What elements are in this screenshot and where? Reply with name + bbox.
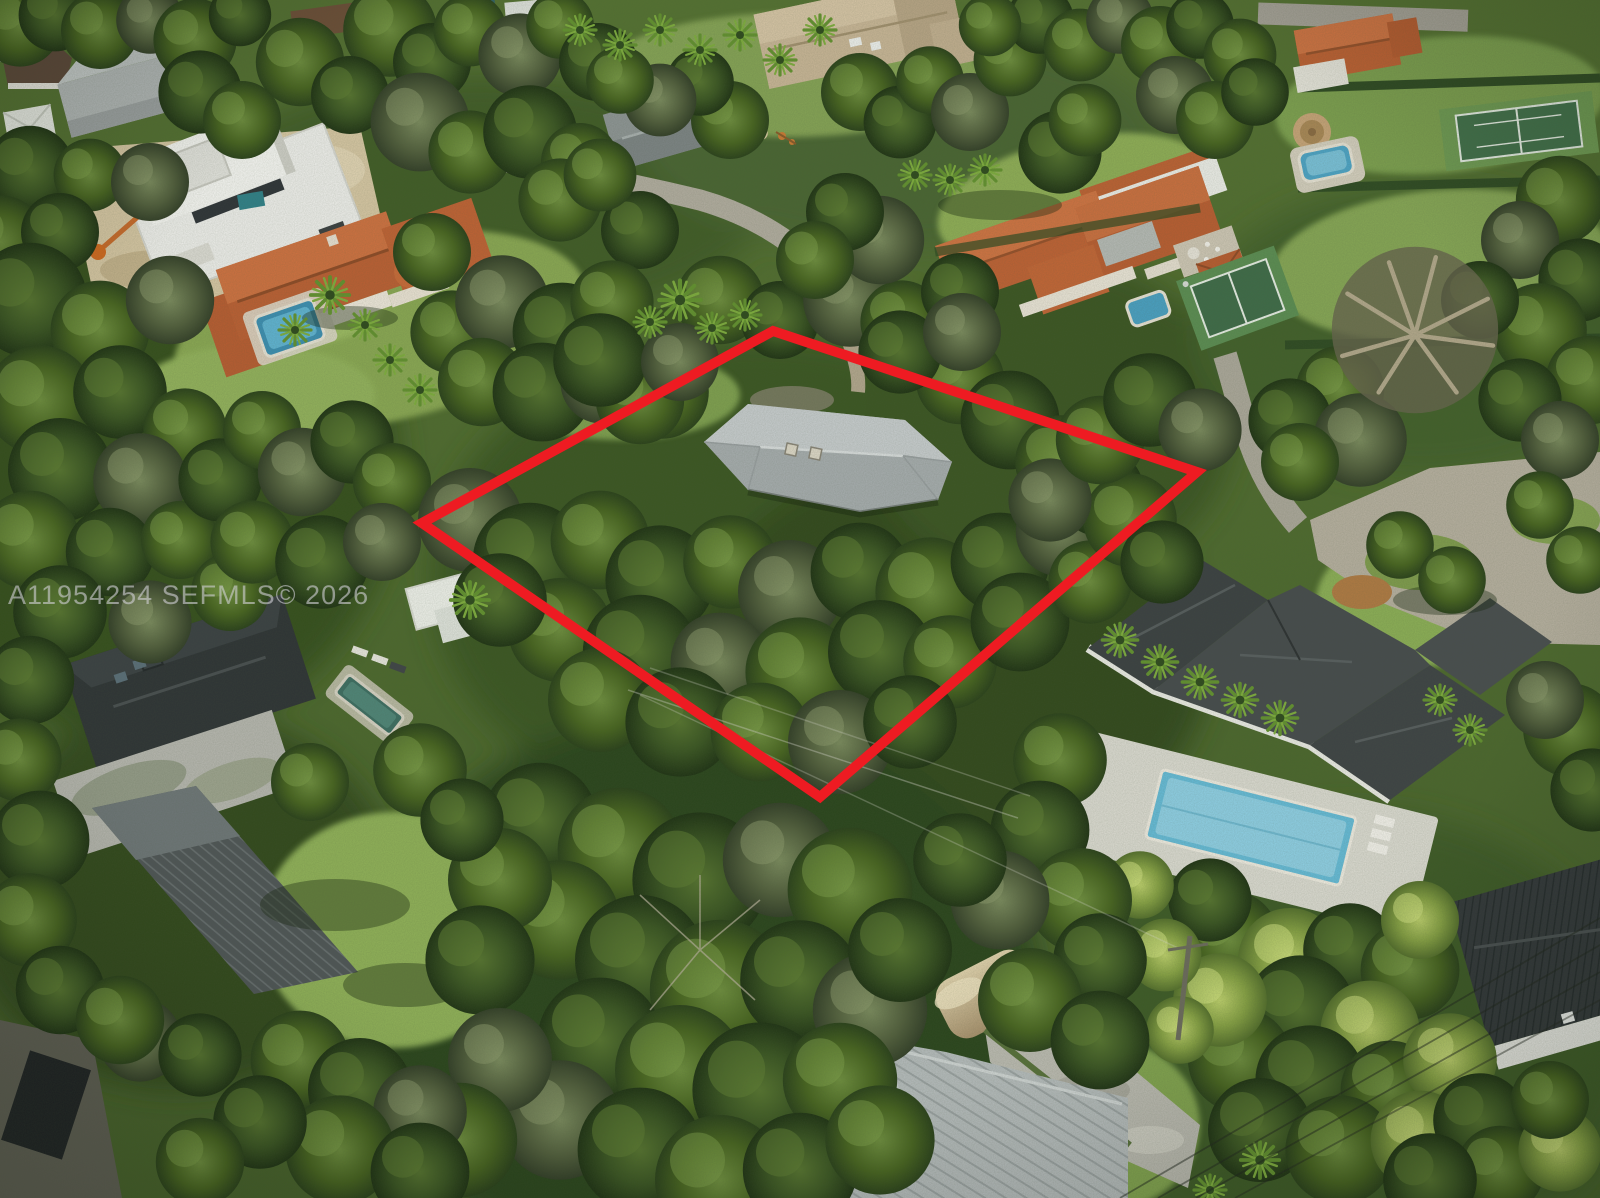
aerial-photo: A11954254 SEFMLS© 2026 xyxy=(0,0,1600,1198)
mls-watermark: A11954254 SEFMLS© 2026 xyxy=(8,580,369,610)
